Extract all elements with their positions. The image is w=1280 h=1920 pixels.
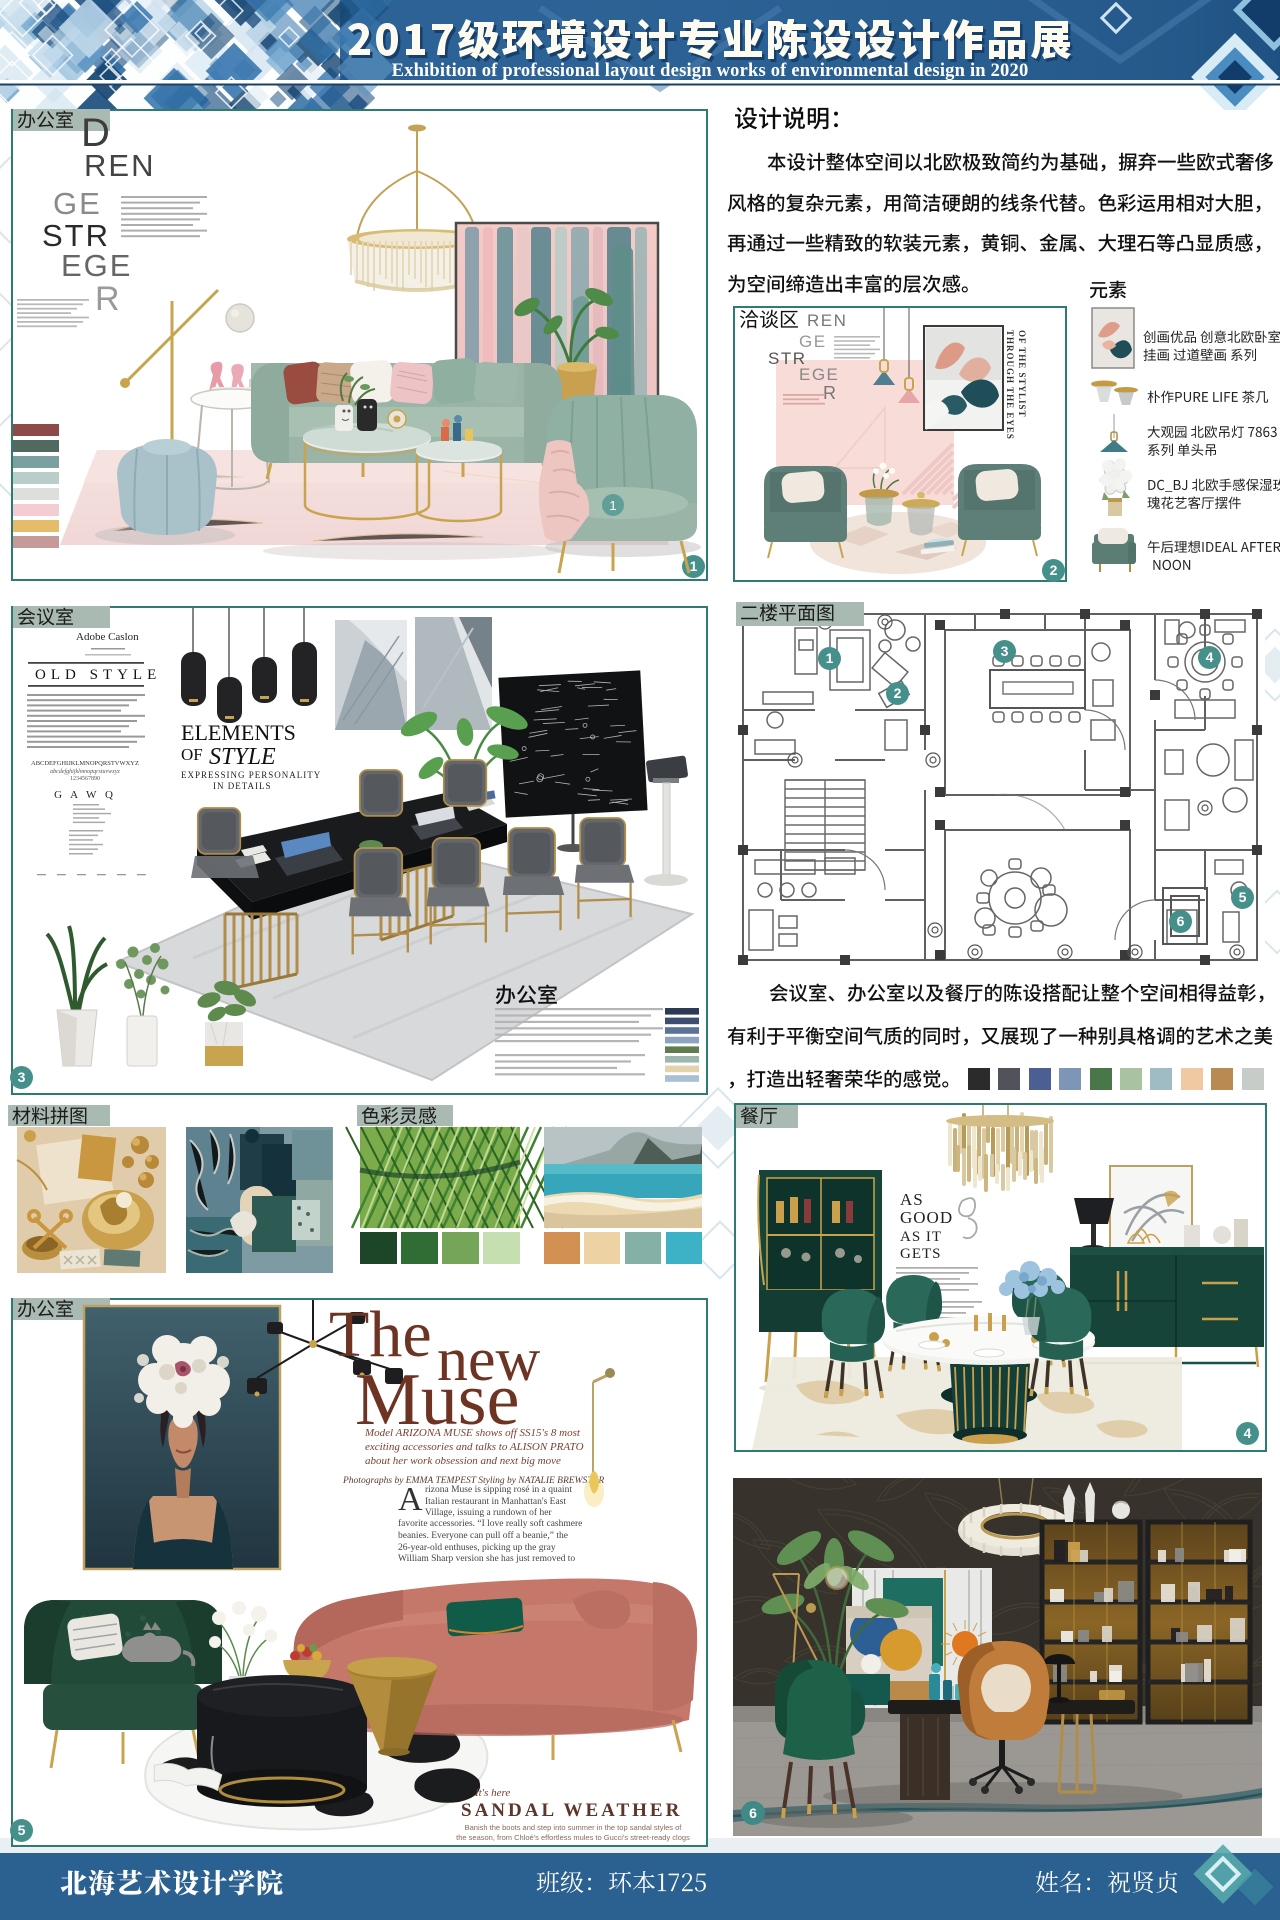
svg-text:R: R bbox=[823, 383, 838, 403]
svg-text:It's here: It's here bbox=[474, 1787, 510, 1799]
svg-text:SANDAL WEATHER: SANDAL WEATHER bbox=[461, 1800, 682, 1821]
svg-text:26-year-old enthuses, picking: 26-year-old enthuses, picking up the gra… bbox=[398, 1543, 556, 1553]
svg-text:REN: REN bbox=[84, 148, 155, 183]
svg-text:THROUGH THE EYES: THROUGH THE EYES bbox=[1005, 330, 1015, 440]
svg-text:Village, issuing a rundown of: Village, issuing a rundown of her bbox=[425, 1507, 552, 1518]
svg-text:beanies. Everyone can pull off: beanies. Everyone can pull off a beanie,… bbox=[398, 1530, 568, 1541]
svg-text:the season, from Chloé's effor: the season, from Chloé's effortless mule… bbox=[456, 1833, 690, 1842]
svg-text:ABCDEFGHIJKLMNOPQRSTVWXYZ: ABCDEFGHIJKLMNOPQRSTVWXYZ bbox=[31, 760, 139, 767]
svg-text:exciting accessories and talks: exciting accessories and talks to ALISON… bbox=[365, 1441, 584, 1453]
svg-text:OLD STYLE: OLD STYLE bbox=[35, 667, 161, 683]
svg-text:GETS: GETS bbox=[900, 1246, 942, 1262]
svg-text:GOOD: GOOD bbox=[900, 1208, 953, 1227]
svg-text:STYLE: STYLE bbox=[209, 744, 276, 770]
svg-text:favorite accessories. “I love: favorite accessories. “I love really sof… bbox=[398, 1518, 582, 1529]
svg-text:OF: OF bbox=[181, 745, 203, 764]
svg-text:about her work obsession and n: about her work obsession and next big mo… bbox=[365, 1455, 561, 1467]
svg-text:REN: REN bbox=[807, 311, 847, 330]
svg-text:R: R bbox=[95, 280, 122, 318]
svg-text:EGE: EGE bbox=[61, 248, 132, 283]
svg-text:G A W Q: G A W Q bbox=[54, 789, 116, 801]
svg-text:GE: GE bbox=[53, 186, 102, 221]
svg-text:Banish the boots and step into: Banish the boots and step into summer in… bbox=[465, 1823, 683, 1832]
svg-text:EXPRESSING PERSONALITY: EXPRESSING PERSONALITY bbox=[181, 770, 321, 780]
svg-text:IN DETAILS: IN DETAILS bbox=[213, 781, 272, 791]
svg-text:A: A bbox=[398, 1481, 423, 1518]
svg-text:AS: AS bbox=[900, 1190, 924, 1209]
svg-text:EGE: EGE bbox=[799, 365, 839, 384]
svg-text:Italian restaurant in Manhatta: Italian restaurant in Manhattan's East bbox=[425, 1497, 566, 1507]
svg-text:Model ARIZONA MUSE shows off S: Model ARIZONA MUSE shows off SS15's 8 mo… bbox=[364, 1427, 581, 1439]
svg-text:William Sharp version she has: William Sharp version she has just remov… bbox=[398, 1554, 575, 1564]
svg-text:1234567890: 1234567890 bbox=[70, 776, 100, 782]
svg-text:rizona Muse is sipping rosé in: rizona Muse is sipping rosé in a quaint bbox=[425, 1485, 572, 1495]
svg-text:ELEMENTS: ELEMENTS bbox=[181, 720, 296, 745]
svg-text:Adobe Caslon: Adobe Caslon bbox=[76, 631, 139, 643]
svg-text:6: 6 bbox=[749, 1805, 757, 1821]
svg-text:OF THE STYLIST: OF THE STYLIST bbox=[1017, 330, 1027, 418]
svg-text:AS IT: AS IT bbox=[900, 1229, 942, 1245]
svg-text:abcdefghijklmnopqrstuvwxyz: abcdefghijklmnopqrstuvwxyz bbox=[50, 768, 120, 775]
svg-text:1: 1 bbox=[609, 498, 616, 513]
